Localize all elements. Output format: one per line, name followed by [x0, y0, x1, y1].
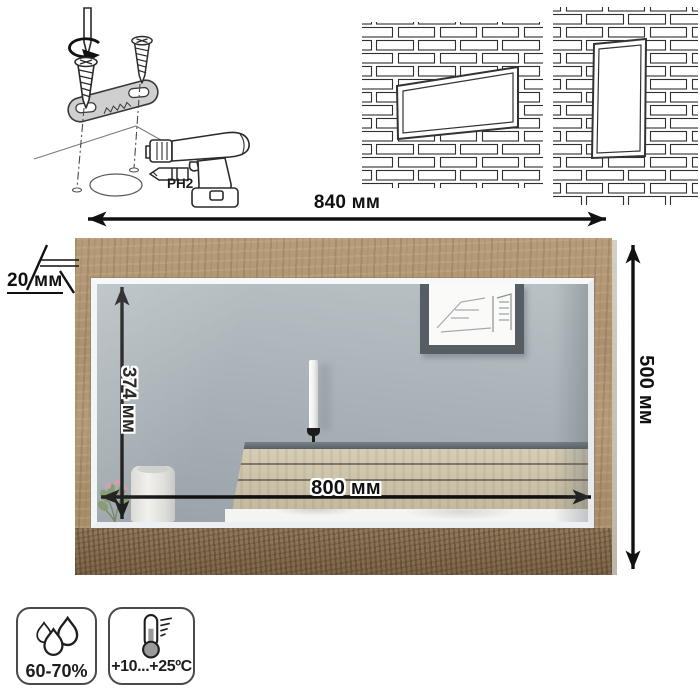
humidity-badge: 60-70%	[16, 607, 97, 685]
humidity-label: 60-70%	[25, 661, 87, 682]
temperature-badge: +10...+25ºC	[108, 607, 195, 685]
water-drops-icon	[31, 613, 83, 663]
glass-width-dimension-label: 800 мм	[311, 478, 381, 498]
height-dimension-label: 500 мм	[636, 355, 656, 425]
thermometer-icon	[129, 612, 175, 660]
width-dimension-label: 840 мм	[314, 193, 380, 212]
dimension-overlay	[0, 0, 700, 700]
glass-height-dimension-label: 374 мм	[119, 367, 138, 433]
thickness-dimension-label: 20 мм	[7, 271, 63, 294]
product-sheet: PH2	[0, 0, 700, 700]
temperature-label: +10...+25ºC	[111, 658, 192, 676]
